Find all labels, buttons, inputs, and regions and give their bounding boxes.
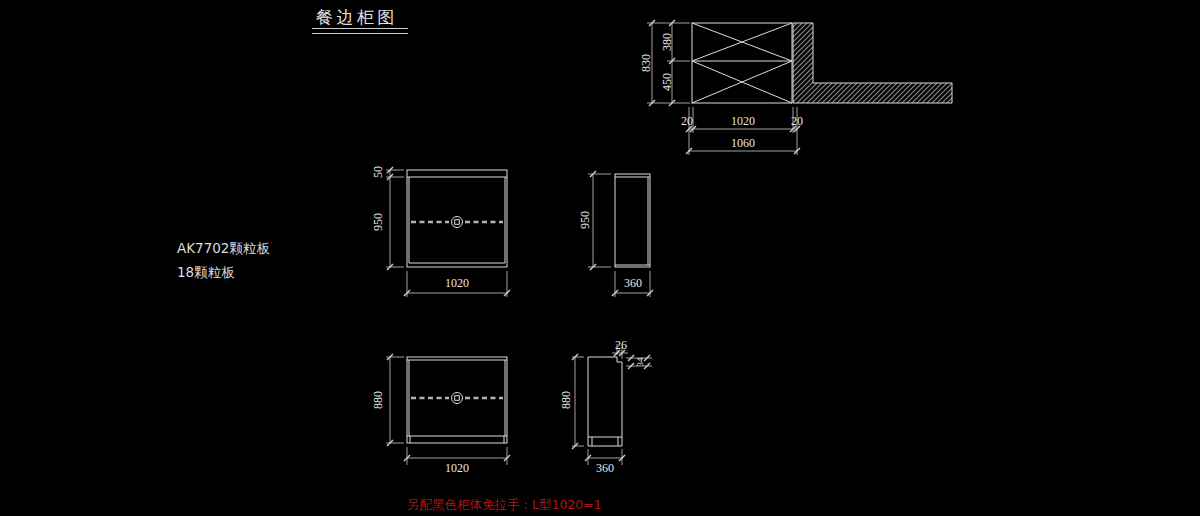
- dim-label-880-side: 880: [559, 391, 573, 409]
- dim-label-830: 830: [639, 54, 653, 72]
- side-view-upper: [615, 174, 650, 267]
- dim-label-20-left: 20: [681, 114, 693, 128]
- top-view-cabinet: [692, 23, 952, 103]
- dim-label-34: 34: [635, 357, 645, 367]
- dim-label-1060: 1060: [731, 136, 755, 150]
- dim-label-950-side: 950: [578, 211, 592, 229]
- cad-linework: 830 380 450 20 1020 20 1060: [0, 0, 1200, 516]
- front-view-upper: [407, 170, 507, 267]
- dim-label-1020-front-upper: 1020: [445, 276, 469, 290]
- dim-label-360-lower: 360: [596, 461, 614, 475]
- dim-label-360-upper: 360: [624, 276, 642, 290]
- dim-label-1020-front-lower: 1020: [445, 461, 469, 475]
- dim-label-26: 26: [615, 338, 627, 352]
- dim-label-880-front: 880: [371, 391, 385, 409]
- front-lower-dimensions: [386, 354, 510, 465]
- dim-label-380: 380: [660, 33, 674, 51]
- wall-hatch-l-shape: [793, 23, 952, 103]
- dim-label-450: 450: [660, 73, 674, 91]
- side-view-lower: [588, 357, 622, 446]
- dim-label-1020-top: 1020: [731, 114, 755, 128]
- dim-label-950-front: 950: [371, 213, 385, 231]
- dim-label-50: 50: [371, 166, 385, 178]
- dim-label-20-right: 20: [791, 114, 803, 128]
- side-upper-dimensions: [588, 171, 653, 297]
- cad-drawing-canvas: 餐边柜图 AK7702颗粒板 18颗粒板 另配黑色柜体免拉手：L型1020=1: [0, 0, 1200, 516]
- front-view-lower: [407, 357, 507, 443]
